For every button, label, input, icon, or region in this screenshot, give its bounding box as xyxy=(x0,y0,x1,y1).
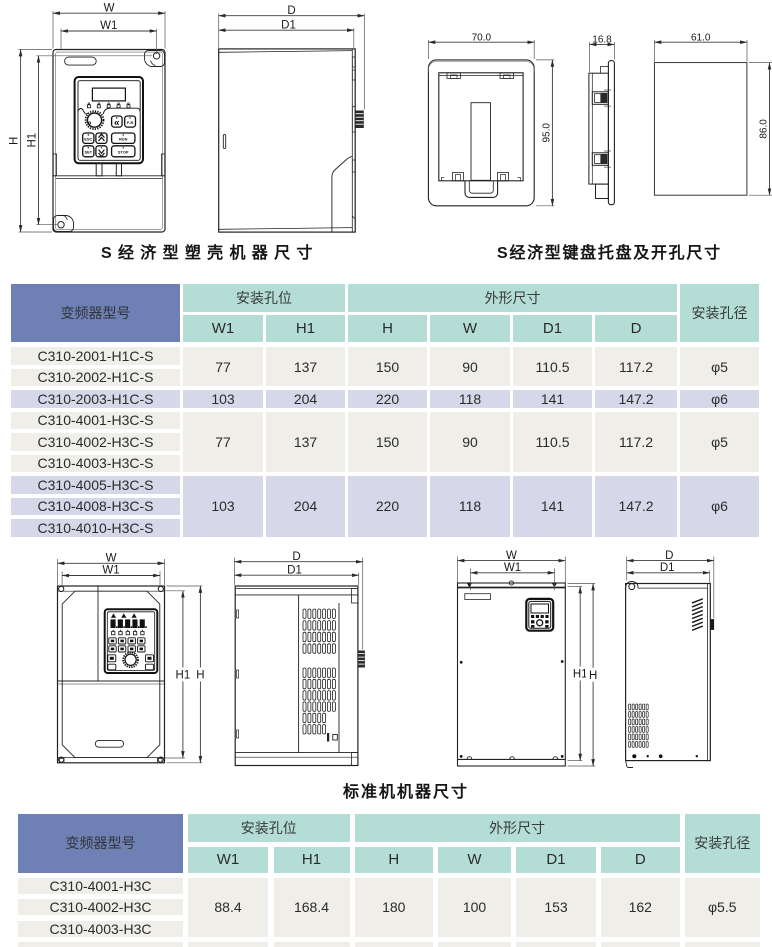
svg-text:86.0: 86.0 xyxy=(759,119,770,139)
svg-text:D1: D1 xyxy=(287,564,302,576)
svg-text:W1: W1 xyxy=(102,565,119,577)
svg-text:D1: D1 xyxy=(660,562,675,574)
svg-text:H1: H1 xyxy=(27,133,39,148)
svg-text:16.8: 16.8 xyxy=(592,35,612,46)
svg-text:W1: W1 xyxy=(100,20,117,32)
svg-text:H: H xyxy=(9,137,21,145)
svg-text:D1: D1 xyxy=(281,19,296,31)
svg-text:D: D xyxy=(292,551,300,563)
svg-text:61.0: 61.0 xyxy=(691,32,711,43)
svg-text:RUN: RUN xyxy=(119,137,128,142)
svg-text:D: D xyxy=(665,550,673,562)
svg-text:STOP: STOP xyxy=(118,150,129,155)
svg-text:W1: W1 xyxy=(504,562,521,574)
svg-text:D: D xyxy=(287,5,295,17)
svg-text:W: W xyxy=(104,2,115,14)
svg-text:«: « xyxy=(114,117,120,128)
svg-text:95.0: 95.0 xyxy=(541,123,552,143)
svg-text:W: W xyxy=(506,550,517,562)
svg-text:H: H xyxy=(196,669,204,681)
svg-text:ESC: ESC xyxy=(84,137,92,142)
svg-text:70.0: 70.0 xyxy=(472,32,492,43)
svg-text:SET: SET xyxy=(85,150,93,155)
svg-text:H1: H1 xyxy=(176,669,191,681)
svg-text:H1: H1 xyxy=(573,669,588,681)
svg-text:H: H xyxy=(589,670,597,682)
svg-text:W: W xyxy=(106,553,117,565)
svg-text:F-R: F-R xyxy=(127,120,134,125)
